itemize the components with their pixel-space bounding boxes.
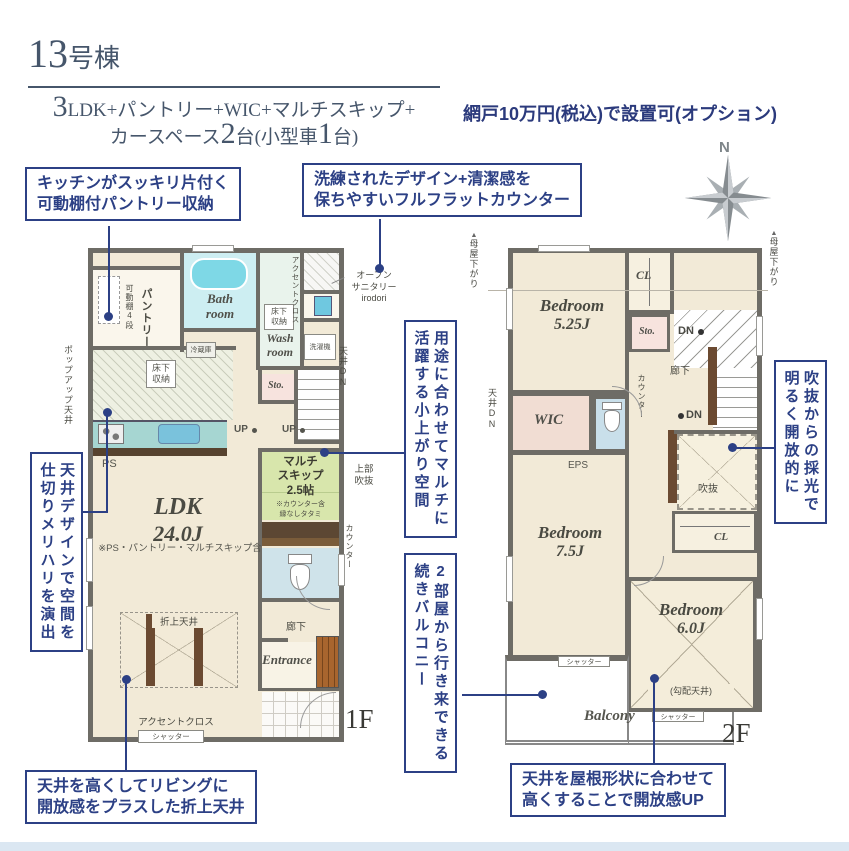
leader-dot — [728, 443, 737, 452]
sanitary-mirror — [314, 296, 332, 316]
window — [538, 245, 590, 252]
wall — [300, 318, 339, 322]
window — [506, 556, 513, 602]
callout-void-light: 吹抜からの採光で 明るく開放的に — [774, 360, 827, 524]
spec-car-count: 2 — [221, 117, 236, 150]
spec-line-2: カースペース2台(小型車1台) — [28, 119, 440, 149]
roof-lowering-line — [488, 290, 768, 291]
title-divider — [28, 86, 440, 88]
roof-lowering-right: ▲ 母屋下がり — [766, 230, 782, 287]
arrow-up-icon: ▲ — [466, 232, 482, 239]
bedroom1-size: 5.25J — [526, 316, 618, 334]
label-bedroom1: Bedroom 5.25J — [526, 296, 618, 334]
multi-skip-step — [262, 522, 339, 546]
page-title: 13号棟 — [28, 30, 120, 77]
wall — [513, 450, 625, 455]
callout-balcony-access: 2部屋から行き来できる 続きバルコニー — [404, 553, 457, 773]
label-storage-1f: Sto. — [268, 380, 284, 391]
floor-plan-2f: Bedroom 5.25J CL Sto. DN 廊下 カウンター WIC EP… — [508, 248, 762, 712]
leader-line — [379, 219, 381, 268]
screen-option-note: 網戸10万円(税込)で設置可(オプション) — [463, 100, 777, 126]
spec-car-end: 台) — [333, 127, 358, 148]
label-upper-void: 上部 吹抜 — [351, 464, 377, 488]
leader-line — [106, 416, 108, 512]
shutter-label-2f-a: シャッター — [558, 656, 610, 667]
label-dn-1: DN — [678, 325, 694, 337]
window — [756, 316, 763, 356]
leader-dot — [104, 312, 113, 321]
label-ceiling-dn-2f: 天井DN — [486, 388, 499, 430]
label-stairs-up-1: UP — [234, 424, 248, 435]
wall — [256, 253, 260, 332]
stair-up-dot — [300, 428, 305, 433]
callout-pantry-storage: キッチンがスッキリ片付く 可動棚付パントリー収納 — [25, 167, 241, 221]
window — [192, 245, 234, 252]
label-ldk-note: ※PS・パントリー・マルチスキップ含 — [98, 540, 262, 554]
floor-plan-1f: 可動棚4段 パントリー Bath room 床下 収納 Wash room アク… — [88, 248, 344, 742]
stairs-2f-flight — [713, 368, 757, 432]
toilet-tank — [288, 554, 312, 564]
underfloor-storage-box: 床下 収納 — [146, 360, 176, 388]
label-cl1: CL — [636, 268, 651, 283]
leader-dot — [375, 264, 384, 273]
floor-tag-1f: 1F — [345, 704, 374, 735]
building-number: 13 — [28, 31, 68, 76]
label-bathroom: Bath room — [188, 292, 252, 322]
label-entrance: Entrance — [258, 652, 316, 668]
leader-line — [736, 447, 774, 449]
wall — [258, 638, 288, 642]
wall — [258, 688, 339, 691]
label-hallway-2f: 廊下 — [670, 362, 690, 377]
callout-ceiling-design: 天井デザインで空間を 仕切りメリハリを演出 — [30, 452, 83, 652]
spec-ldk-rest: LDK+パントリー+WIC+マルチスキップ+ — [68, 100, 416, 121]
shutter-label-2f-b: シャッター — [652, 711, 704, 722]
bedroom1-name: Bedroom — [526, 296, 618, 316]
label-bedroom2: Bedroom 7.5J — [528, 523, 612, 561]
label-void: 吹抜 — [698, 480, 718, 495]
stair-railing — [708, 347, 717, 425]
stair-dn-dot — [698, 329, 704, 335]
bedroom3-name: Bedroom — [648, 600, 734, 620]
bedroom2-name: Bedroom — [528, 523, 612, 543]
wall — [294, 440, 339, 444]
window — [506, 288, 513, 330]
leader-dot — [122, 675, 131, 684]
label-sloped-ceiling: (勾配天井) — [648, 684, 734, 697]
label-stairs-up-2: UP — [282, 424, 296, 435]
spec-car-mid: 台(小型車 — [236, 127, 318, 148]
label-multi-skip-note: ※カウンター含 縁なしタタミ — [262, 498, 339, 519]
callout-multi-space: 用途に合わせてマルチに 活躍する小上がり空間 — [404, 320, 457, 538]
wall — [180, 328, 260, 332]
callout-folded-ceiling: 天井を高くしてリビングに 開放感をプラスした折上天井 — [25, 770, 257, 824]
stair-up-dot — [252, 428, 257, 433]
bottom-strip — [0, 842, 849, 851]
ldk-name: LDK — [118, 494, 238, 521]
wall — [513, 390, 625, 396]
spec-small-car-count: 1 — [318, 117, 333, 150]
balcony-left — [505, 655, 629, 745]
shutter-label-1f: シャッター — [138, 730, 204, 743]
window — [338, 554, 345, 586]
leader-line — [108, 226, 110, 316]
label-balcony: Balcony — [584, 708, 656, 725]
label-ps: PS — [102, 458, 117, 470]
label-washroom: Wash room — [259, 332, 301, 360]
void-area — [677, 434, 757, 510]
window — [86, 606, 93, 650]
label-storage-2f: Sto. — [639, 326, 655, 337]
leader-line — [462, 694, 542, 696]
label-accent-cloth-top: アクセントクロス — [290, 256, 301, 324]
leader-line — [326, 452, 404, 454]
label-folded-ceiling: 折上天井 — [152, 614, 206, 628]
wall — [258, 400, 298, 404]
wall — [670, 253, 674, 310]
wall — [674, 430, 757, 434]
label-multi-skip: マルチ スキップ 2.5帖 — [262, 452, 339, 498]
multi-skip-room: マルチ スキップ 2.5帖 ※カウンター含 縁なしタタミ — [262, 452, 339, 520]
bedroom2-size: 7.5J — [528, 543, 612, 561]
wall — [300, 290, 339, 294]
bedroom3-size: 6.0J — [648, 620, 734, 638]
label-wic: WIC — [534, 412, 563, 429]
label-roof-lowering-right: 母屋下がり — [768, 237, 781, 287]
label-pantry: パントリー — [138, 288, 154, 348]
label-ceiling-dn-1f: 天井DN — [337, 346, 350, 388]
leader-line — [125, 683, 127, 770]
label-accent-cloth-bottom: アクセントクロス — [136, 714, 216, 728]
label-hallway-1f: 廊下 — [286, 618, 306, 633]
closet-accent-cloth — [304, 253, 339, 290]
fridge-space: 冷蔵庫 — [186, 342, 216, 358]
leader-line — [80, 511, 108, 513]
label-cl2: CL — [714, 531, 728, 543]
washer-space: 洗濯機 — [304, 334, 336, 360]
callout-roof-ceiling: 天井を屋根形状に合わせて 高くすることで開放感UP — [510, 763, 726, 817]
window — [86, 538, 93, 582]
label-open-sanitary: オープン サニタリー irodori — [342, 270, 406, 305]
window — [756, 598, 763, 640]
kitchen-sink — [158, 424, 200, 444]
leader-dot — [650, 674, 659, 683]
compass-rose-icon — [682, 152, 774, 244]
wall — [629, 310, 674, 314]
leader-dot — [320, 448, 329, 457]
wall — [258, 370, 262, 404]
label-pantry-shelf: 可動棚4段 — [124, 284, 135, 330]
label-eps: EPS — [568, 460, 588, 471]
leader-line — [653, 682, 655, 763]
label-roof-lowering-left: 母屋下がり — [468, 239, 481, 289]
counter-edge — [93, 448, 227, 456]
flyer-page: 13号棟 3LDK+パントリー+WIC+マルチスキップ+ カースペース2台(小型… — [0, 0, 849, 851]
roof-lowering-left: ▲ 母屋下がり — [466, 232, 482, 289]
closet-pole — [680, 526, 750, 527]
entrance-wood-deck — [316, 636, 339, 688]
wall — [93, 266, 184, 270]
leader-dot — [538, 690, 547, 699]
stove-icon — [98, 424, 124, 444]
label-bedroom3: Bedroom 6.0J — [648, 600, 734, 638]
arrow-up-icon: ▲ — [766, 230, 782, 237]
callout-flat-counter: 洗練されたデザイン+清潔感を 保ちやすいフルフラットカウンター — [302, 163, 582, 217]
label-counter-1f: カウンター — [344, 524, 355, 569]
building-suffix: 号棟 — [68, 44, 120, 73]
label-dn-2: DN — [686, 409, 702, 421]
floor-tag-2f: 2F — [722, 718, 751, 749]
label-popup-ceiling: ポップアップ天井 — [62, 345, 75, 425]
spec-car-pre: カースペース — [110, 127, 221, 148]
bathtub — [190, 258, 248, 290]
stair-dn-dot — [678, 413, 684, 419]
